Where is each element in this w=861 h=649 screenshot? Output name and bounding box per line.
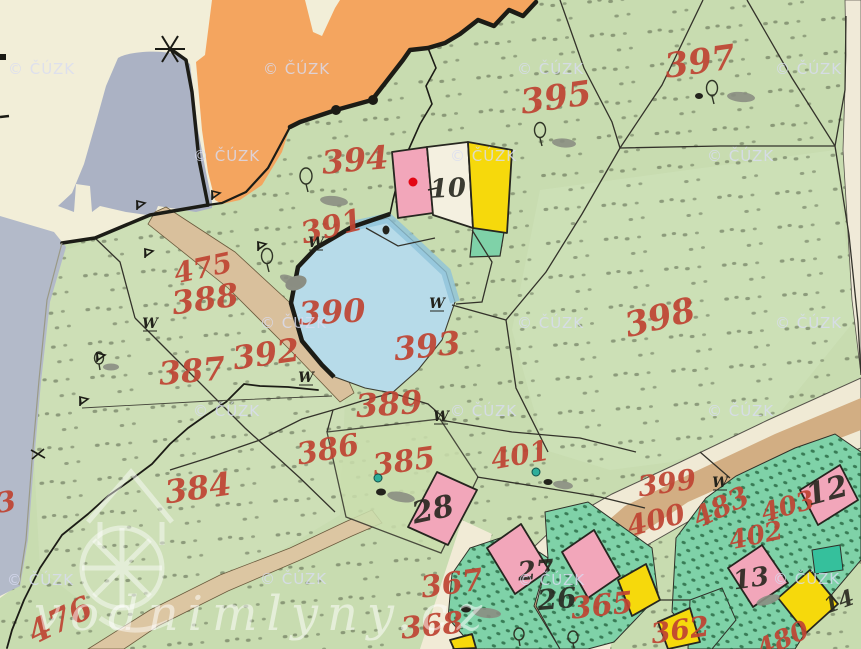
edge-mark-1 xyxy=(0,54,6,60)
parcel-number-389: 389 xyxy=(354,383,423,426)
cuzk-watermark: © ČÚZK xyxy=(8,59,75,78)
meadow-symbol: W xyxy=(433,409,450,425)
svg-text:W: W xyxy=(308,235,325,251)
parcel-number-393: 393 xyxy=(392,324,462,369)
cuzk-watermark: © ČÚZK xyxy=(193,146,260,165)
well-marker xyxy=(374,474,382,482)
cuzk-watermark: © ČÚZK xyxy=(193,401,260,420)
parcel-number-394: 394 xyxy=(320,138,390,182)
meadow-symbol: W xyxy=(429,296,446,312)
boundary-stone xyxy=(369,96,378,105)
well-marker xyxy=(532,468,540,476)
svg-text:W: W xyxy=(712,475,729,491)
svg-text:W: W xyxy=(433,409,450,425)
cuzk-watermark: © ČÚZK xyxy=(518,570,585,589)
cuzk-watermark: © ČÚZK xyxy=(773,569,840,588)
edge-mark-2 xyxy=(0,116,9,117)
cuzk-watermark: © ČÚZK xyxy=(263,59,330,78)
cuzk-watermark: © ČÚZK xyxy=(450,146,517,165)
red-dot-marker xyxy=(409,178,418,187)
cuzk-watermark: © ČÚZK xyxy=(775,59,842,78)
boundary-stone xyxy=(332,106,341,115)
cuzk-watermark: © ČÚZK xyxy=(260,313,327,332)
cadastral-map[interactable]: 3973953943914753883903933983873923893863… xyxy=(0,0,861,649)
svg-text:W: W xyxy=(142,316,159,332)
svg-text:W: W xyxy=(429,296,446,312)
parcel-number-362: 362 xyxy=(649,610,711,649)
cuzk-watermark: © ČÚZK xyxy=(450,401,517,420)
meadow-symbol: W xyxy=(142,316,159,332)
meadow-symbol: W xyxy=(712,475,729,491)
site-watermark-text: vodnimlyny.cz xyxy=(34,586,491,642)
meadow-symbol: W xyxy=(308,235,325,251)
cuzk-watermark: © ČÚZK xyxy=(707,146,774,165)
parcel-number-365: 365 xyxy=(569,585,635,626)
building-number-10: 10 xyxy=(429,173,467,205)
cuzk-watermark: © ČÚZK xyxy=(517,313,584,332)
cuzk-watermark: © ČÚZK xyxy=(517,59,584,78)
meadow-symbol: W xyxy=(298,370,315,386)
parcel-number-387: 387 xyxy=(157,349,227,393)
svg-text:W: W xyxy=(298,370,315,386)
cuzk-watermark: © ČÚZK xyxy=(775,313,842,332)
building-number-13: 13 xyxy=(731,562,771,597)
cuzk-watermark: © ČÚZK xyxy=(707,401,774,420)
